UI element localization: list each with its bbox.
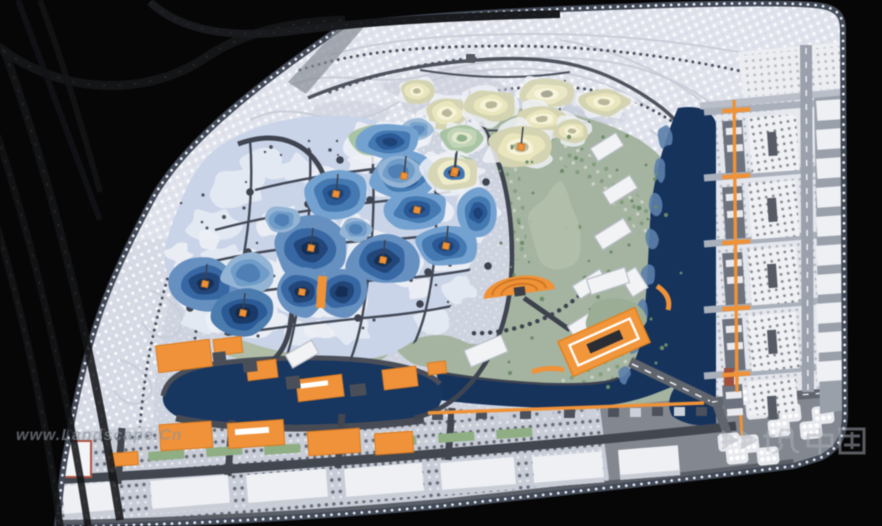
svg-text:www.Landscape.Cn: www.Landscape.Cn — [16, 427, 183, 444]
